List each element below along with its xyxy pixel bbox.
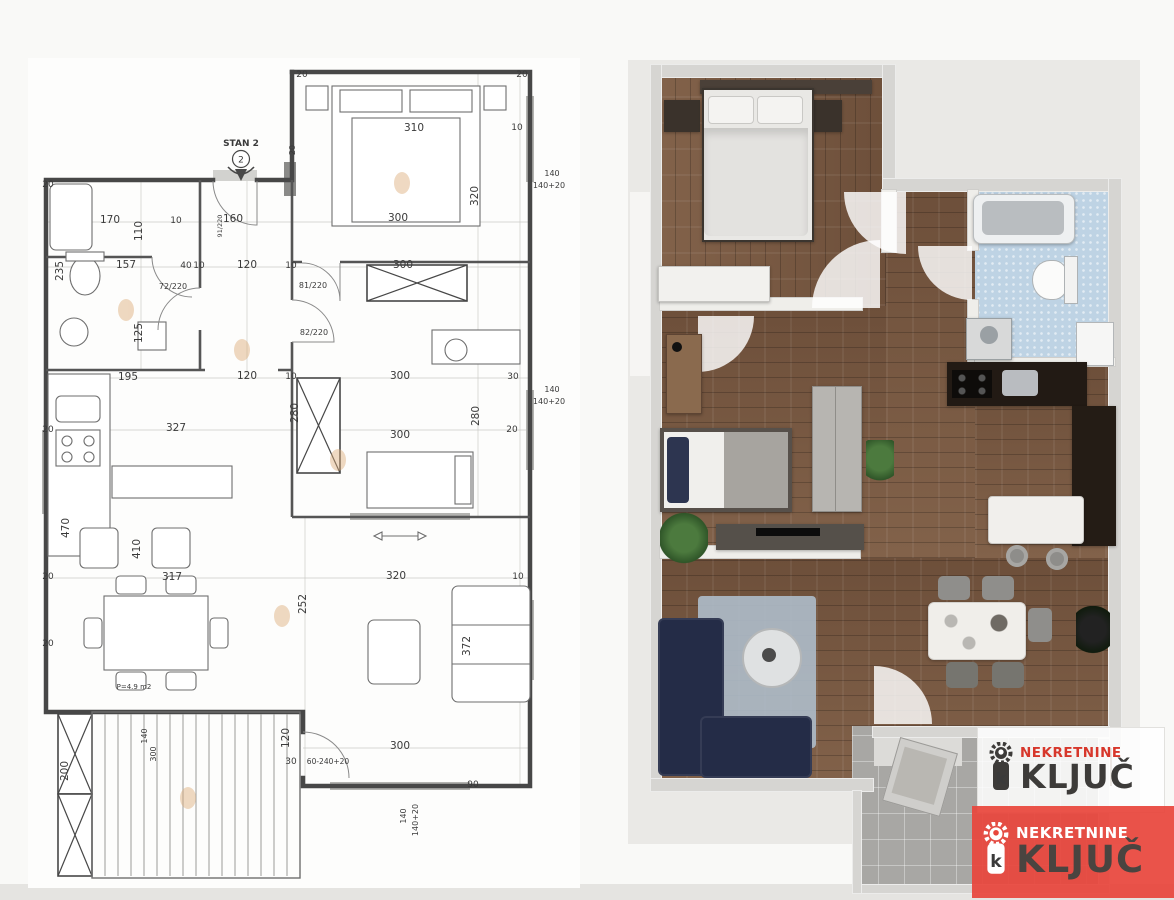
dimension-label: 140+20 (533, 181, 565, 190)
lounger-cushion (892, 747, 948, 805)
dimension-label: 40 (180, 261, 192, 271)
dimension-label: 81/220 (299, 281, 327, 290)
dimension-label: 10 (170, 216, 182, 226)
dimension-label: 20 (42, 639, 54, 649)
apartment-number: 2 (238, 156, 244, 166)
dimension-label: 170 (100, 214, 120, 226)
wardrobe (812, 386, 862, 512)
nightstand-2d (484, 86, 506, 110)
dining-table (928, 602, 1026, 660)
dimension-label: 10 (285, 261, 297, 271)
dimension-label: 320 (469, 186, 481, 206)
dimension-label: 125 (133, 323, 145, 343)
dimension-label: 300 (388, 212, 408, 224)
dimension-label: 30 (507, 372, 519, 382)
coffee-table-decor (762, 648, 776, 662)
plant (866, 440, 894, 486)
armchair-2d (368, 620, 420, 684)
dimension-label: 20 (42, 572, 54, 582)
dimension-label: 110 (133, 221, 145, 241)
dimension-label: 300 (390, 740, 410, 752)
key-icon: k (982, 822, 1010, 882)
dimension-label: 20 (42, 425, 54, 435)
dimension-label: 60-240+20 (307, 757, 350, 766)
key-icon: k (988, 742, 1014, 798)
dimension-label: 10 (511, 123, 523, 133)
cooktop (952, 370, 992, 398)
dimension-label: 140+20 (411, 804, 420, 836)
dimension-label: 72/220 (159, 282, 187, 291)
dining-chair (938, 576, 970, 600)
dimension-label: 140 (140, 728, 149, 743)
dimension-label: 90 (467, 780, 479, 790)
bathtub-basin (982, 201, 1064, 235)
dimension-label: 10 (512, 572, 524, 582)
dimension-label: 120 (237, 259, 257, 271)
dimension-label: 372 (461, 636, 473, 656)
dimension-label: 10 (193, 261, 205, 271)
dimension-label: 20 (516, 70, 528, 80)
dining-chair (992, 662, 1024, 688)
dimension-label: 140 (544, 385, 559, 394)
apartment-label: STAN 2 (223, 139, 259, 149)
bathtub-2d (50, 184, 92, 250)
dimension-label: 195 (118, 371, 138, 383)
desk-lamp-icon (672, 342, 682, 352)
dimension-label: 30 (285, 757, 297, 767)
toilet-2d (70, 257, 100, 295)
dimension-label: 327 (166, 422, 186, 434)
dimension-label: 20 (42, 180, 54, 190)
svg-text:k: k (990, 852, 1002, 872)
plant-dark (1076, 606, 1110, 658)
toilet (1032, 260, 1068, 300)
dimension-label: 82/220 (300, 328, 328, 337)
bar-stool (1046, 548, 1068, 570)
dining-table-2d (104, 596, 208, 670)
dining-chair (982, 576, 1014, 600)
pillow (708, 96, 754, 124)
bathroom-sink (1076, 322, 1114, 366)
bar-stool (1006, 545, 1028, 567)
agency-watermark: k NEKRETNINE KLJUČ (977, 727, 1165, 813)
agency-watermark-red: k NEKRETNINE KLJUČ (972, 806, 1174, 898)
dimension-label: 470 (60, 518, 72, 538)
plant (660, 512, 708, 564)
toilet-tank (1064, 256, 1078, 304)
dimension-label: 317 (162, 571, 182, 583)
dining-chair (1028, 608, 1052, 642)
sofa-seat (700, 716, 812, 778)
pillow-navy (667, 437, 689, 503)
washer-door-icon (980, 326, 998, 344)
dimension-label: 120 (280, 728, 292, 748)
kitchen-island (988, 496, 1084, 544)
dimension-label: 300 (390, 429, 410, 441)
dimension-label: 140+20 (533, 397, 565, 406)
brand-name-main: KLJUČ (1020, 760, 1135, 793)
dimension-label: 310 (404, 122, 424, 134)
dimension-label: P=4.9 m2 (117, 683, 152, 691)
armchair-2d (152, 528, 190, 568)
dimension-label: 300 (390, 370, 410, 382)
chair-2d (445, 339, 467, 361)
dimension-label: 410 (131, 539, 143, 559)
blanket (724, 432, 788, 508)
dimension-label: 20 (296, 70, 308, 80)
dimension-label: 20 (288, 145, 297, 155)
wall (650, 64, 896, 78)
dimension-label: 280 (470, 406, 482, 426)
technical-floor-plan: STAN 2 2 310320202010201701101091/220160… (0, 0, 620, 900)
wall (650, 778, 874, 792)
dimension-label: 252 (297, 594, 309, 614)
svg-text:k: k (996, 769, 1007, 788)
floorplan-photo: STAN 2 2 310320202010201701101091/220160… (0, 0, 1174, 900)
dimension-label: 157 (116, 259, 136, 271)
kitchen-sink-2d (56, 396, 100, 422)
dimension-label: 140 (544, 169, 559, 178)
dimension-label: 20 (506, 425, 518, 435)
dimension-label: 320 (386, 570, 406, 582)
dimension-label: 235 (54, 261, 66, 281)
wall (852, 790, 862, 894)
kitchen-sink (1002, 370, 1038, 396)
armchair-2d (80, 528, 118, 568)
wall (882, 64, 896, 192)
dining-chair (946, 662, 978, 688)
dimension-label: 120 (237, 370, 257, 382)
nightstand (664, 100, 700, 132)
stove-2d (56, 430, 100, 466)
dimension-label: 10 (285, 372, 297, 382)
tv (756, 528, 820, 536)
dimension-label: 140 (399, 808, 408, 823)
island-2d (112, 466, 232, 498)
dimension-label: 300 (393, 259, 413, 271)
dresser (658, 266, 770, 302)
dimension-label: 200 (59, 761, 71, 781)
dimension-label: 280 (289, 403, 301, 423)
dimension-label: 300 (149, 746, 158, 761)
sink-2d (60, 318, 88, 346)
pillow (757, 96, 803, 124)
wall (882, 178, 1122, 192)
duvet (704, 128, 808, 236)
brand-name-main: KLJUČ (1016, 841, 1144, 878)
nightstand-2d (306, 86, 328, 110)
dimension-label: 160 (223, 213, 243, 225)
